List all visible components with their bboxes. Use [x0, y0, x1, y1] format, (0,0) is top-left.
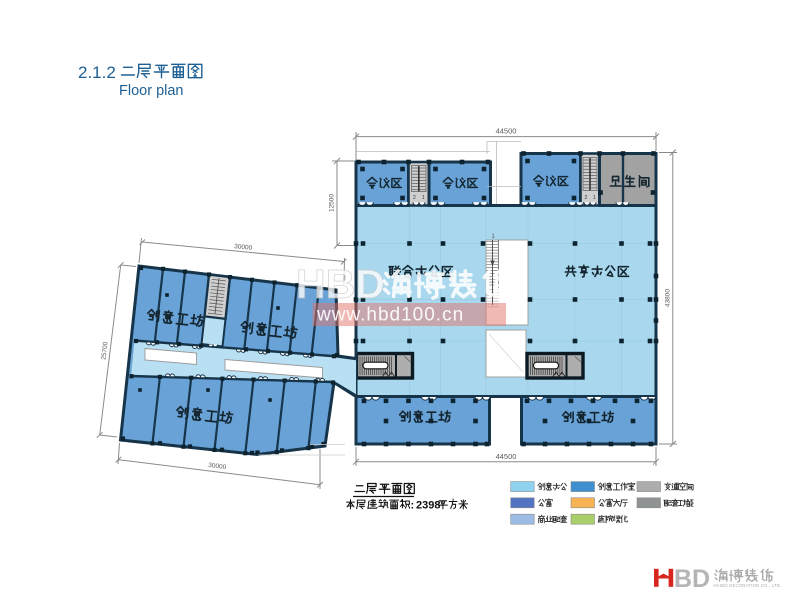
svg-text:2.1.2: 2.1.2	[78, 63, 116, 82]
svg-text:HAIBO DECORATION CO., LTD.: HAIBO DECORATION CO., LTD.	[714, 583, 782, 588]
svg-text:43800: 43800	[665, 289, 672, 307]
svg-text:BD: BD	[674, 565, 710, 593]
svg-text:44500: 44500	[496, 452, 517, 461]
svg-text:2: 2	[413, 195, 416, 201]
svg-text:HBD: HBD	[296, 261, 385, 307]
svg-text:www.hbd100.cn: www.hbd100.cn	[316, 305, 464, 326]
svg-text:2398: 2398	[416, 500, 440, 512]
svg-text:1: 1	[422, 195, 425, 201]
svg-text:44500: 44500	[496, 127, 517, 136]
svg-text::: :	[411, 500, 415, 512]
svg-text:1: 1	[593, 195, 596, 201]
svg-text:12500: 12500	[329, 194, 336, 212]
svg-text:Floor plan: Floor plan	[119, 83, 183, 99]
svg-text:2: 2	[585, 195, 588, 201]
